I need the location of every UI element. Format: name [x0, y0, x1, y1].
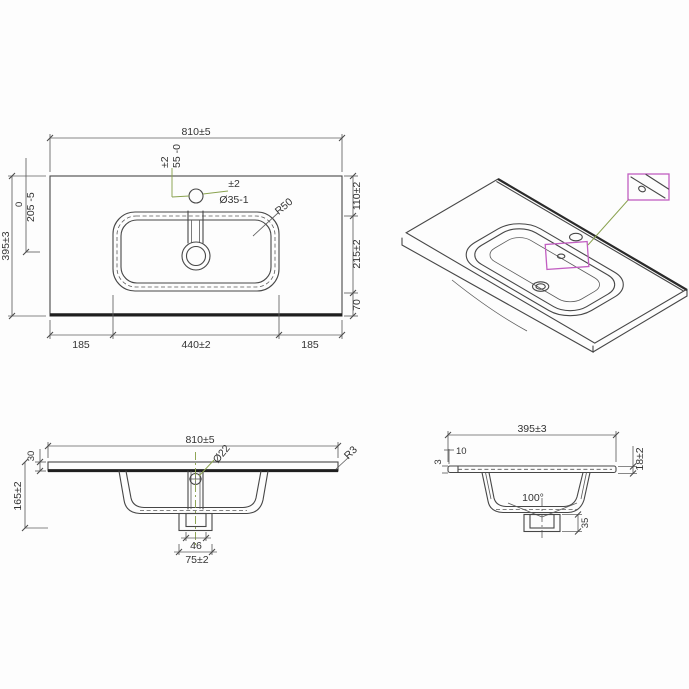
dim-plan-right: 110±2 215±2 70 — [344, 173, 363, 319]
dim-front-drain-inner: 46 — [181, 532, 211, 552]
front-drain-outer-label: 75±2 — [185, 554, 208, 566]
side-drain-cone: 100° — [508, 492, 577, 517]
plan-faucet-offset-tol-label: ±2 — [159, 156, 171, 168]
front-overflow-shaft — [188, 452, 203, 547]
plan-right-bottom-label: 70 — [351, 299, 363, 311]
plan-right-top-label: 110±2 — [351, 182, 363, 211]
dim-faucet-offset: ±2 55 -0 — [159, 144, 183, 168]
plan-basin-outline — [113, 212, 279, 291]
plan-view: ±2 55 -0 ±2 Ø35-1 R50 810±5 — [0, 126, 363, 351]
dim-front-width: 810±5 — [45, 434, 341, 458]
iso-faucet-hole — [567, 232, 585, 243]
drawing-svg: ±2 55 -0 ±2 Ø35-1 R50 810±5 — [0, 0, 689, 689]
technical-drawing-canvas: ±2 55 -0 ±2 Ø35-1 R50 810±5 — [0, 0, 689, 689]
plan-faucet-offset-label: 55 -0 — [171, 144, 183, 168]
dim-plan-height: 395±3 — [0, 173, 46, 319]
dim-plan-basin-position: 0 205 -5 — [14, 158, 40, 255]
front-edge-radius-label: R3 — [342, 444, 360, 462]
dim-side-edge-thickness: 18±2 — [618, 446, 646, 477]
side-drain-height-label: 35 — [580, 518, 591, 529]
dim-plan-bottom: 185 440±2 185 — [47, 295, 345, 351]
front-total-depth-label: 165±2 — [12, 481, 24, 510]
plan-hole-tol-label: ±2 — [228, 178, 240, 190]
detail-source-box — [545, 242, 589, 270]
plan-drain-hole — [182, 242, 210, 270]
side-front-lip-label: 3 — [433, 459, 444, 464]
side-back-ledge-label: 10 — [456, 446, 467, 457]
dim-front-total-depth: 165±2 — [12, 459, 48, 531]
iso-overflow-hole — [556, 253, 566, 259]
side-view: 100° 395±3 10 3 — [433, 423, 646, 540]
side-slab — [448, 466, 616, 473]
dim-corner-radius: R50 — [253, 196, 295, 236]
plan-right-mid-label: 215±2 — [351, 239, 363, 268]
dim-side-back-ledge: 10 — [444, 446, 467, 464]
plan-bottom-center-label: 440±2 — [181, 339, 210, 351]
plan-basin-ref-zero-label: 0 — [14, 202, 25, 207]
side-basin-angle-label: 100° — [522, 492, 544, 504]
dim-front-edge-radius: R3 — [336, 444, 360, 469]
plan-hole-dia-label: Ø35-1 — [219, 194, 248, 206]
front-view: 810±5 Ø22 30 165±2 R3 — [12, 434, 360, 566]
iso-slab-thickness — [402, 179, 687, 352]
dim-side-drain-height: 35 — [562, 512, 591, 535]
front-basin-section — [119, 471, 268, 514]
plan-width-label: 810±5 — [181, 126, 210, 138]
plan-height-label: 395±3 — [0, 231, 12, 260]
front-slab — [48, 462, 338, 471]
front-drain-inner-label: 46 — [190, 540, 202, 552]
plan-basin-position-label: 205 -5 — [25, 192, 37, 222]
dim-faucet-hole: ±2 Ø35-1 — [219, 178, 248, 206]
side-depth-label: 395±3 — [517, 423, 546, 435]
iso-view — [402, 174, 687, 352]
dim-side-depth: 395±3 — [445, 423, 619, 462]
iso-drain-hole — [529, 280, 552, 293]
side-basin-section — [482, 473, 590, 541]
dim-side-front-lip: 3 — [433, 459, 448, 473]
plan-bottom-left-label: 185 — [72, 339, 90, 351]
detail-overflow-hole — [638, 185, 647, 193]
side-edge-thickness-label: 18±2 — [634, 447, 646, 470]
dim-front-slab-thickness: 30 — [26, 449, 46, 474]
plan-bottom-right-label: 185 — [301, 339, 319, 351]
dim-plan-width: 810±5 — [47, 126, 345, 172]
front-width-label: 810±5 — [185, 434, 214, 446]
